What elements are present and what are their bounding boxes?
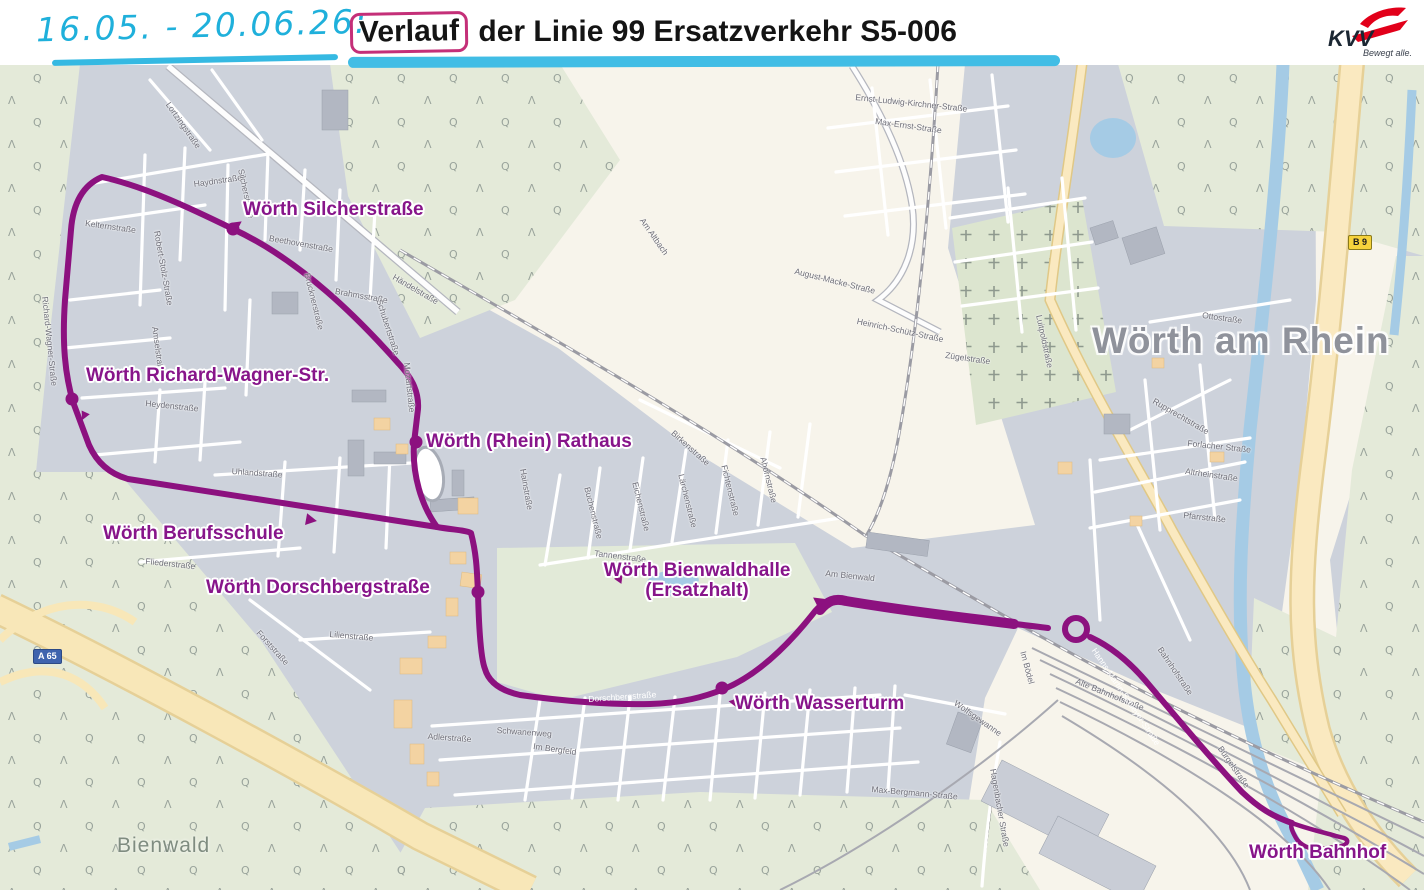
title-text: der Linie 99 Ersatzverkehr S5-006 (470, 15, 957, 48)
kvv-logo: KVV Bewegt alle. (1322, 4, 1414, 62)
page-title: Verlauf der Linie 99 Ersatzverkehr S5-00… (350, 12, 957, 53)
stop-marker-wasserturm (716, 682, 729, 695)
flyer-page: Λ Q (0, 0, 1424, 890)
stop-marker-richard-wagner (66, 393, 79, 406)
map-canvas: Λ Q (0, 0, 1424, 890)
kvv-logo-tagline: Bewegt alle. (1363, 48, 1412, 58)
lake (1090, 118, 1136, 158)
stop-marker-rathaus (410, 436, 423, 449)
stop-marker-dorschbergstrasse (472, 586, 485, 599)
title-highlighted-word: Verlauf (350, 11, 469, 54)
title-underline-marker (348, 55, 1060, 68)
handwritten-dates: 16.05. - 20.06.26: (36, 2, 369, 50)
